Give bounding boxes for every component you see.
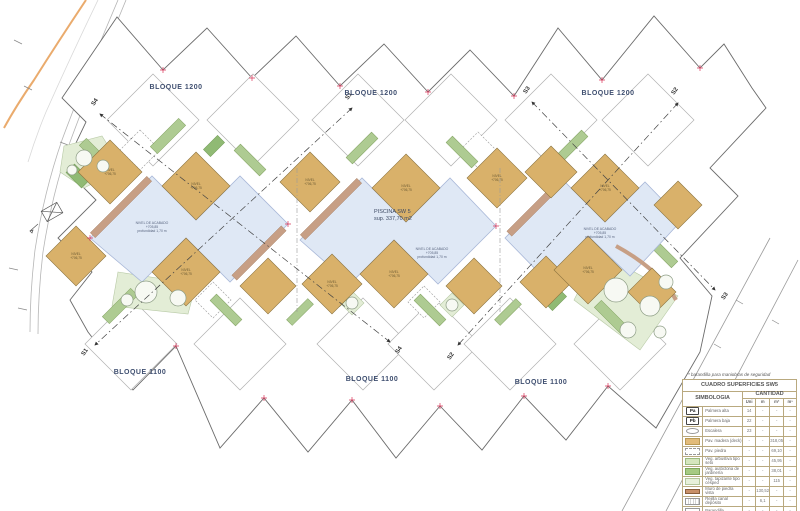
legend-value-m2: 318,05: [770, 436, 784, 446]
legend-value-m: -: [756, 426, 770, 436]
legend-symbol: [683, 476, 703, 486]
svg-text:+706,75: +706,75: [388, 274, 400, 278]
legend-value-m2: -: [770, 426, 784, 436]
legend-value-m3: -: [784, 406, 797, 416]
legend-value-m3: -: [784, 496, 797, 506]
legend-value-m2: -: [770, 486, 784, 496]
legend-value-m3: -: [784, 476, 797, 486]
legend-row: Barandilla - - - -: [683, 506, 797, 511]
unit-col: m³: [784, 398, 797, 406]
legend-symbol: [683, 496, 703, 506]
legend-symbol: [683, 466, 703, 476]
svg-text:+706,75: +706,75: [582, 270, 594, 274]
legend-footnote: * barandilla para maniobras de seguridad: [688, 372, 799, 377]
legend-item-name: Escalera: [703, 426, 743, 436]
legend-value-m: 130,52: [756, 486, 770, 496]
legend-value-uni: -: [743, 436, 756, 446]
legend-value-m: -: [756, 506, 770, 511]
legend-row: Veg. autóctona de jardinería - - 38,01 -: [683, 466, 797, 476]
legend-row: Pav. piedra - - 69,10 -: [683, 446, 797, 456]
legend-row: Pav. madera (deck) - - 318,05 -: [683, 436, 797, 446]
legend-row: Muro de piedra vista - 130,52 - -: [683, 486, 797, 496]
table-title: CUADRO SUPERFICIES SW5: [683, 380, 797, 392]
legend-value-uni: 23: [743, 426, 756, 436]
legend-value-m3: -: [784, 416, 797, 426]
unit-col: Uni: [743, 398, 756, 406]
legend-value-uni: -: [743, 496, 756, 506]
legend-symbol: [683, 506, 703, 511]
svg-text:+706,75: +706,75: [599, 188, 611, 192]
legend-body: Pa Palmera alta 14 - - - Pb Palmera baja…: [683, 406, 797, 511]
svg-text:+706,75: +706,75: [326, 284, 338, 288]
legend-value-m2: 115: [770, 476, 784, 486]
legend-value-m: -: [756, 416, 770, 426]
legend-value-uni: 22: [743, 416, 756, 426]
legend-value-m3: -: [784, 456, 797, 466]
legend-value-m: 6,1: [756, 496, 770, 506]
legend-item-name: Rejilla canal depósito: [703, 496, 743, 506]
legend-value-m2: -: [770, 506, 784, 511]
col-cantidad: CANTIDAD: [743, 392, 797, 399]
svg-text:+706,75: +706,75: [491, 178, 503, 182]
legend-row: Rejilla canal depósito - 6,1 - -: [683, 496, 797, 506]
legend-panel: * barandilla para maniobras de seguridad…: [682, 372, 799, 511]
block-label: BLOQUE 1100: [346, 376, 399, 383]
legend-value-m: -: [756, 436, 770, 446]
svg-text:+706,75: +706,75: [104, 172, 116, 176]
legend-value-m: -: [756, 456, 770, 466]
legend-value-uni: -: [743, 506, 756, 511]
svg-text:+706,75: +706,75: [400, 188, 412, 192]
legend-value-m: -: [756, 446, 770, 456]
legend-value-m: -: [756, 476, 770, 486]
site-plan-drawing: NIVEL +706,75 NIVEL +706,75 NIVEL +706,7…: [0, 0, 800, 511]
pool-title: PISCINA SW 5: [374, 209, 411, 215]
legend-item-name: Veg. arbustiva tipo seto: [703, 456, 743, 466]
legend-symbol: Pb: [683, 416, 703, 426]
svg-text:S3: S3: [721, 291, 731, 301]
legend-value-m2: 38,01: [770, 466, 784, 476]
block-label: BLOQUE 1100: [515, 379, 568, 386]
legend-item-name: Veg. tapizante tipo césped: [703, 476, 743, 486]
legend-item-name: Pav. madera (deck): [703, 436, 743, 446]
legend-value-m2: 45,95: [770, 456, 784, 466]
architectural-site-plan: NIVEL +706,75 NIVEL +706,75 NIVEL +706,7…: [0, 0, 800, 511]
legend-value-m3: -: [784, 466, 797, 476]
legend-symbol: Pa: [683, 406, 703, 416]
legend-value-uni: -: [743, 476, 756, 486]
legend-row: Veg. arbustiva tipo seto - - 45,95 -: [683, 456, 797, 466]
legend-value-uni: -: [743, 446, 756, 456]
block-label: BLOQUE 1200: [150, 84, 203, 91]
legend-value-m2: -: [770, 496, 784, 506]
legend-symbol: [683, 426, 703, 436]
svg-text:profundidad 1,70 m: profundidad 1,70 m: [137, 229, 166, 233]
legend-item-name: Veg. autóctona de jardinería: [703, 466, 743, 476]
legend-value-m3: -: [784, 446, 797, 456]
unit-col: m: [756, 398, 770, 406]
legend-value-m3: -: [784, 506, 797, 511]
legend-item-name: Palmera alta: [703, 406, 743, 416]
legend-item-name: Pav. piedra: [703, 446, 743, 456]
legend-row: Pb Palmera baja 22 - - -: [683, 416, 797, 426]
legend-value-m3: -: [784, 426, 797, 436]
legend-value-m: -: [756, 406, 770, 416]
legend-value-uni: 14: [743, 406, 756, 416]
svg-text:S1: S1: [81, 347, 91, 357]
legend-symbol: [683, 446, 703, 456]
unit-col: m²: [770, 398, 784, 406]
svg-text:profundidad 1,70 m: profundidad 1,70 m: [585, 235, 614, 239]
legend-item-name: Barandilla: [703, 506, 743, 511]
legend-row: Veg. tapizante tipo césped - - 115 -: [683, 476, 797, 486]
legend-item-name: Palmera baja: [703, 416, 743, 426]
col-simbologia: SIMBOLOGIA: [683, 392, 743, 407]
svg-text:+706,75: +706,75: [70, 256, 82, 260]
plan-stamp-symbol: [30, 202, 63, 233]
legend-value-m: -: [756, 466, 770, 476]
legend-item-name: Muro de piedra vista: [703, 486, 743, 496]
block-label: BLOQUE 1100: [114, 369, 167, 376]
block-label: BLOQUE 1200: [582, 90, 635, 97]
legend-value-m2: -: [770, 416, 784, 426]
legend-value-m3: -: [784, 486, 797, 496]
legend-symbol: [683, 436, 703, 446]
legend-value-uni: -: [743, 486, 756, 496]
legend-symbol: [683, 486, 703, 496]
legend-value-m2: 69,10: [770, 446, 784, 456]
legend-value-m3: -: [784, 436, 797, 446]
block-label: BLOQUE 1200: [345, 90, 398, 97]
pool-area: sup. 337,70 m2: [374, 216, 412, 222]
legend-symbol: [683, 456, 703, 466]
legend-value-m2: -: [770, 406, 784, 416]
svg-text:+706,75: +706,75: [304, 182, 316, 186]
legend-value-uni: -: [743, 456, 756, 466]
legend-row: Pa Palmera alta 14 - - -: [683, 406, 797, 416]
legend-value-uni: -: [743, 466, 756, 476]
svg-text:profundidad 1,70 m: profundidad 1,70 m: [417, 255, 446, 259]
svg-text:+706,75: +706,75: [180, 272, 192, 276]
legend-row: Escalera 23 - - -: [683, 426, 797, 436]
surfaces-table: CUADRO SUPERFICIES SW5 SIMBOLOGIA CANTID…: [682, 379, 797, 511]
